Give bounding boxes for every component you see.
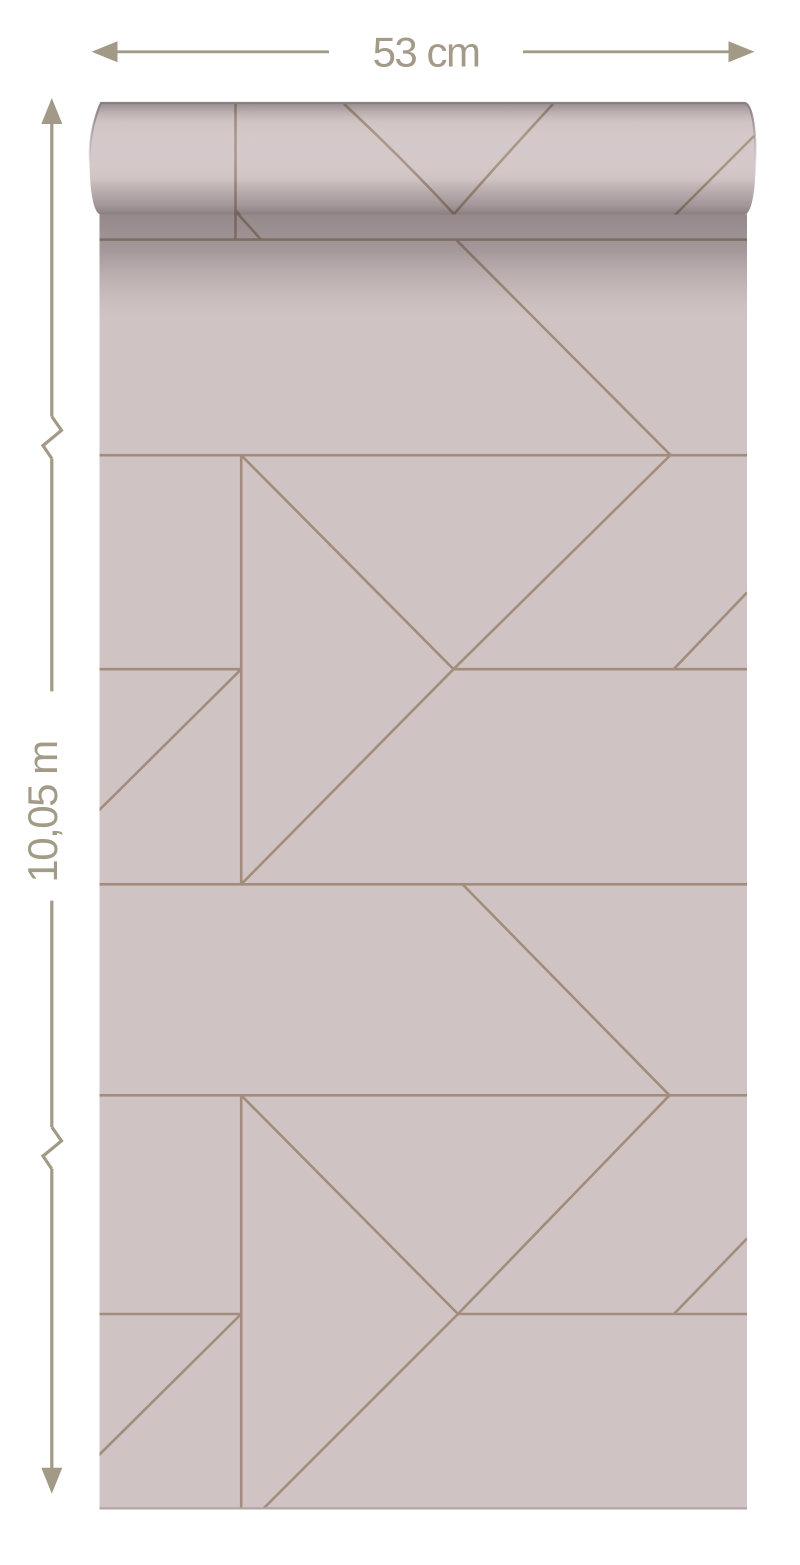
svg-text:53 cm: 53 cm bbox=[373, 29, 480, 76]
svg-text:10,05 m: 10,05 m bbox=[19, 741, 66, 882]
